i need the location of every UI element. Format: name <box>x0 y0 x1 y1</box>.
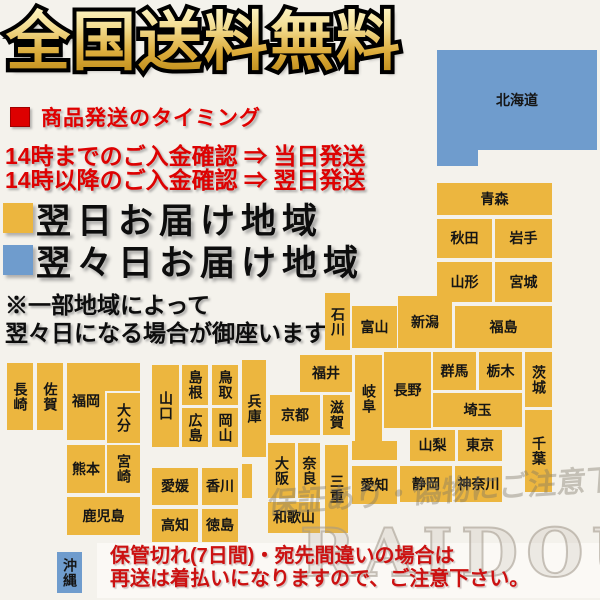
prefecture-block-長崎: 長崎 <box>7 363 33 430</box>
map-landmass-piece <box>352 441 397 460</box>
prefecture-block-岩手: 岩手 <box>495 219 552 258</box>
prefecture-block-埼玉: 埼玉 <box>433 393 522 427</box>
prefecture-block-富山: 富山 <box>352 306 397 348</box>
prefecture-block-沖縄: 沖縄 <box>57 552 82 593</box>
prefecture-block-大分: 大分 <box>107 393 140 443</box>
prefecture-block-広島: 広島 <box>182 408 208 447</box>
prefecture-block-鹿児島: 鹿児島 <box>67 497 140 535</box>
prefecture-block-山梨: 山梨 <box>410 430 455 461</box>
shipping-infographic: 全国送料無料 全国送料無料 商品発送のタイミング 14時までのご入金確認 ⇒ 当… <box>0 0 600 600</box>
map-landmass-piece <box>437 150 478 166</box>
prefecture-block-熊本: 熊本 <box>67 445 105 493</box>
prefecture-block-東京: 東京 <box>458 430 502 461</box>
prefecture-block-鳥取: 鳥取 <box>212 365 238 405</box>
prefecture-block-宮崎: 宮崎 <box>107 445 140 493</box>
prefecture-block-新潟: 新潟 <box>398 296 452 348</box>
prefecture-block-茨城: 茨城 <box>525 352 552 407</box>
map-landmass-piece <box>242 464 252 498</box>
prefecture-block-岐阜: 岐阜 <box>355 355 382 443</box>
footer-warning-line-2: 再送は着払いになりますので、ご注意下さい。 <box>110 568 529 591</box>
prefecture-block-福岡: 福岡 <box>67 363 105 440</box>
prefecture-block-栃木: 栃木 <box>479 352 522 390</box>
prefecture-block-高知: 高知 <box>152 509 198 542</box>
prefecture-block-山口: 山口 <box>152 365 179 447</box>
prefecture-block-佐賀: 佐賀 <box>37 363 63 430</box>
prefecture-block-秋田: 秋田 <box>437 219 492 258</box>
prefecture-block-群馬: 群馬 <box>433 352 476 390</box>
prefecture-block-長野: 長野 <box>384 352 431 428</box>
prefecture-block-石川: 石川 <box>325 293 350 350</box>
prefecture-block-島根: 島根 <box>182 365 208 405</box>
map-landmass-piece <box>103 363 140 391</box>
prefecture-block-徳島: 徳島 <box>202 509 238 542</box>
footer-warning-line-1: 保管切れ(7日間)・宛先間違いの場合は <box>110 545 529 568</box>
prefecture-block-京都: 京都 <box>270 395 320 435</box>
prefecture-block-岡山: 岡山 <box>212 408 238 447</box>
prefecture-block-福島: 福島 <box>455 306 552 348</box>
prefecture-block-青森: 青森 <box>437 183 552 215</box>
prefecture-block-香川: 香川 <box>202 468 238 505</box>
prefecture-block-兵庫: 兵庫 <box>242 360 266 457</box>
storage-expiry-warning: 保管切れ(7日間)・宛先間違いの場合は 再送は着払いになりますので、ご注意下さい… <box>110 545 529 591</box>
prefecture-block-滋賀: 滋賀 <box>323 395 350 435</box>
prefecture-block-宮城: 宮城 <box>495 262 552 302</box>
prefecture-block-愛媛: 愛媛 <box>152 468 198 505</box>
prefecture-block-福井: 福井 <box>300 355 352 392</box>
prefecture-block-北海道: 北海道 <box>437 50 597 150</box>
